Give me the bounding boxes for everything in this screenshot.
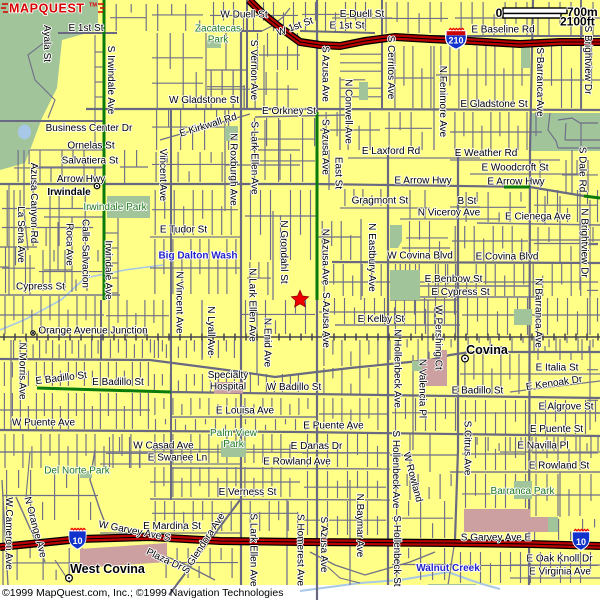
svg-text:0: 0 [496,6,503,20]
svg-text:E Algrove St: E Algrove St [538,402,593,413]
svg-text:E Arrow Hwy: E Arrow Hwy [394,176,451,187]
svg-text:S Garvey Ave E: S Garvey Ave E [461,533,532,544]
svg-text:S Hollenbeck St: S Hollenbeck St [391,515,402,586]
svg-text:210: 210 [448,35,463,45]
svg-text:N Lark Ellen Ave: N Lark Ellen Ave [247,268,258,342]
svg-text:E Orkney St: E Orkney St [262,106,316,117]
svg-text:N Morris Ave: N Morris Ave [17,342,28,399]
svg-text:W Cameron Ave: W Cameron Ave [3,497,14,570]
svg-text:W Pershing Ct: W Pershing Ct [433,305,444,370]
svg-text:Calle Salvacion: Calle Salvacion [80,219,91,288]
svg-text:N Baymar Ave: N Baymar Ave [354,494,365,558]
svg-text:Hospital: Hospital [210,382,246,393]
svg-text:S Dale Rd: S Dale Rd [577,147,588,193]
svg-text:E Benbow St: E Benbow St [425,274,483,285]
svg-text:N Lyall Ave: N Lyall Ave [205,306,216,356]
svg-text:N Eastbury Ave: N Eastbury Ave [366,223,377,292]
svg-text:S Brightview Dr: S Brightview Dr [582,26,593,96]
svg-text:10: 10 [72,536,82,546]
svg-text:N Fenimore Ave: N Fenimore Ave [437,66,448,138]
svg-text:E Tudor St: E Tudor St [160,225,207,236]
svg-text:Barranca Park: Barranca Park [491,486,556,497]
svg-text:E Navilla Pl: E Navilla Pl [517,441,568,452]
svg-text:S Barranca Ave: S Barranca Ave [534,47,545,117]
svg-text:E Virginia Ave: E Virginia Ave [529,567,591,578]
svg-text:S Homerest Ave: S Homerest Ave [295,514,306,587]
svg-text:W Gladstone St: W Gladstone St [169,95,239,106]
svg-text:S Citrus Ave: S Citrus Ave [462,421,473,476]
svg-text:S Cerritos Ave: S Cerritos Ave [385,36,396,100]
svg-text:N Enid Ave: N Enid Ave [262,318,273,368]
svg-text:E Laxford Rd: E Laxford Rd [362,146,420,157]
svg-text:E Louisa Ave: E Louisa Ave [216,406,275,417]
svg-text:E Puente Ave: E Puente Ave [303,421,364,432]
svg-text:Business Center Dr: Business Center Dr [46,123,133,134]
svg-text:E Gladstone St: E Gladstone St [460,99,527,110]
svg-text:N Azusa Ave: N Azusa Ave [320,229,331,286]
svg-text:Park: Park [223,439,245,450]
svg-text:TM: TM [89,3,97,9]
svg-text:E 1st St: E 1st St [329,21,364,32]
svg-text:©1999 MapQuest.com, Inc.; ©199: ©1999 MapQuest.com, Inc.; ©1999 Navigati… [2,587,283,599]
svg-text:S Hollenbeck Ave: S Hollenbeck Ave [390,430,401,509]
svg-text:E Badillo St: E Badillo St [452,386,504,397]
svg-text:W Duell St: W Duell St [220,10,267,21]
svg-text:S Irwindale Ave: S Irwindale Ave [105,46,116,115]
svg-text:East St: East St [333,157,344,189]
svg-text:E Swanee Ln: E Swanee Ln [148,453,208,464]
svg-text:N Grondahl St: N Grondahl St [278,220,289,284]
svg-text:N Valencia Pl: N Valencia Pl [417,359,428,418]
svg-text:E Danas Dr: E Danas Dr [291,441,343,452]
svg-text:E Rowland St: E Rowland St [529,461,590,472]
svg-text:10: 10 [576,537,586,547]
svg-text:Ayala St: Ayala St [41,25,52,62]
svg-text:Palm View: Palm View [210,428,258,439]
svg-text:W Badillo St: W Badillo St [267,382,322,393]
svg-text:E Baseline Rd: E Baseline Rd [471,25,534,36]
svg-text:S Lark Ellen Ave: S Lark Ellen Ave [249,121,260,195]
svg-text:S Azusa Ave: S Azusa Ave [318,517,329,573]
svg-text:E Covina Blvd: E Covina Blvd [476,252,539,263]
svg-text:Irwindale Ave: Irwindale Ave [103,240,114,300]
svg-text:N Conwell Ave: N Conwell Ave [343,79,354,144]
svg-text:N Roxburgh Ave: N Roxburgh Ave [228,133,239,206]
svg-text:Walnut Creek: Walnut Creek [416,563,480,574]
svg-text:Specialty: Specialty [208,370,249,381]
svg-text:Vincent Ave: Vincent Ave [157,149,168,202]
svg-text:Azusa Canyon Rd: Azusa Canyon Rd [28,163,39,244]
svg-text:E 1st St: E 1st St [68,23,103,34]
svg-text:2100ft: 2100ft [560,15,595,29]
svg-text:MAPQUEST: MAPQUEST [9,2,85,16]
svg-text:Salvatiera St: Salvatiera St [62,156,119,167]
svg-text:Big Dalton Wash: Big Dalton Wash [158,251,237,262]
svg-text:Orange Avenue Junction: Orange Avenue Junction [38,326,147,337]
svg-text:W Casad Ave: W Casad Ave [133,441,194,452]
svg-text:Del Norte Park: Del Norte Park [44,466,111,477]
svg-text:Gragmont St: Gragmont St [352,196,409,207]
svg-text:E Arrow Hwy: E Arrow Hwy [487,177,544,188]
svg-text:Irwindale: Irwindale [47,187,91,198]
svg-text:Ornelas St: Ornelas St [67,141,114,152]
svg-text:N Barranca Ave: N Barranca Ave [533,278,544,348]
svg-text:West Covina: West Covina [70,562,146,576]
svg-text:E Puente St: E Puente St [530,424,584,435]
svg-text:N Hollenbeck Ave: N Hollenbeck Ave [392,329,403,408]
svg-text:E Woodcroft St: E Woodcroft St [481,163,548,174]
svg-text:Cypress St: Cypress St [16,282,65,293]
svg-text:Roca Ave: Roca Ave [64,223,75,266]
svg-text:E Cienega Ave: E Cienega Ave [505,212,571,223]
svg-text:W Covina Blvd: W Covina Blvd [387,251,453,262]
svg-text:La Sena Ave: La Sena Ave [15,206,26,263]
svg-text:W Puente Ave: W Puente Ave [12,418,76,429]
svg-text:Zacatecas: Zacatecas [195,24,241,35]
svg-text:E Kelby St: E Kelby St [358,314,405,325]
svg-text:N Vincent Ave: N Vincent Ave [174,271,185,334]
svg-text:E Weather Rd: E Weather Rd [455,148,518,159]
svg-text:B St: B St [458,196,477,207]
svg-text:S Vernon Ave: S Vernon Ave [248,40,259,101]
svg-text:E Rowland Ave: E Rowland Ave [263,457,331,468]
svg-text:E Badillo St: E Badillo St [92,377,144,388]
svg-text:S Azusa Ave: S Azusa Ave [320,292,331,348]
svg-text:Irwindale Park: Irwindale Park [83,202,147,213]
svg-text:Park: Park [208,35,230,46]
svg-text:Covina: Covina [466,343,509,357]
svg-text:N Brightview Dr: N Brightview Dr [579,208,590,278]
svg-text:E Cypress St: E Cypress St [431,287,490,298]
svg-text:E Italia St: E Italia St [536,363,579,374]
svg-text:S Azusa Ave: S Azusa Ave [320,119,331,175]
svg-text:S Lark Ellen Ave: S Lark Ellen Ave [248,513,259,587]
svg-text:S Azusa Ave: S Azusa Ave [320,46,331,102]
svg-text:E Oak Knoll Dr: E Oak Knoll Dr [526,554,593,565]
svg-text:N Viceroy Ave: N Viceroy Ave [418,208,481,219]
svg-text:E Verness St: E Verness St [219,487,277,498]
svg-text:E Duell St: E Duell St [340,9,385,20]
